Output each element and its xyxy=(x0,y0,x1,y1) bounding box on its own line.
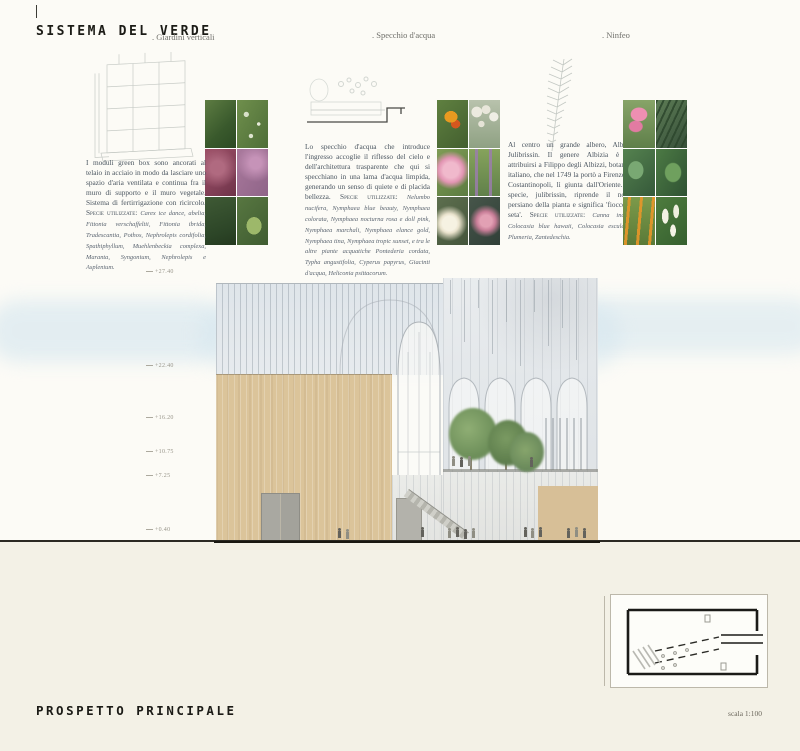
person-figure xyxy=(346,532,349,539)
level-marker: +16.20 xyxy=(146,415,210,421)
scale-note: scala 1:100 xyxy=(728,709,762,718)
photo-albizia-pink-flowers xyxy=(623,100,655,148)
photo-white-blossom-shrub xyxy=(237,100,268,148)
entrance-door xyxy=(261,493,300,543)
species-label: Specie utilizzate: xyxy=(530,210,586,219)
water-plants-photo-collage xyxy=(437,100,500,245)
person-figure xyxy=(567,531,570,538)
drawing-title: PROSPETTO PRINCIPALE xyxy=(36,703,237,718)
person-figure xyxy=(421,530,424,537)
mezzanine-tree xyxy=(510,432,544,472)
vertical-garden-photo-collage xyxy=(205,100,268,245)
photo-pink-lotus xyxy=(437,149,468,197)
hanging-cable xyxy=(478,280,479,308)
person-figure xyxy=(464,532,467,539)
species-list: Nelumbo nucifera, Nymphaea blue beauty, … xyxy=(305,194,430,277)
person-figure xyxy=(530,460,533,467)
presentation-board: SISTEMA DEL VERDE . Giardini verticali .… xyxy=(0,0,800,751)
photo-dark-green-leaves xyxy=(205,197,236,245)
person-figure xyxy=(468,459,471,466)
photo-pink-water-lily xyxy=(469,197,500,245)
photo-calla-lilies xyxy=(656,197,688,245)
photo-purple-fittonia xyxy=(237,149,268,197)
keyplan-drawing xyxy=(625,607,765,677)
species-label: Specie utilizzate: xyxy=(340,192,398,201)
sky-watercolor-wash xyxy=(0,300,228,362)
person-figure xyxy=(583,531,586,538)
building-base-shadow xyxy=(214,541,600,543)
species-label: Specie utilizzate: xyxy=(86,208,137,217)
level-marker: +0.40 xyxy=(146,527,210,533)
level-marker: +22.40 xyxy=(146,363,210,369)
photo-green-foliage xyxy=(205,100,236,148)
person-figure xyxy=(338,531,341,538)
tan-stone-wall xyxy=(216,374,392,542)
photo-heliconia-orange xyxy=(437,100,468,148)
species-list: Carex ice dance, abelia, Fittonia versch… xyxy=(86,210,206,271)
level-marker: +10.75 xyxy=(146,449,210,455)
water-basin-section-sketch xyxy=(303,66,411,138)
photo-canna-orange-flowers xyxy=(623,197,655,245)
vertical-garden-axonometric-sketch xyxy=(85,52,203,164)
photo-monstera-leaf xyxy=(656,149,688,197)
ninfeo-paragraph: Al centro un grande albero, Albizia Juli… xyxy=(508,140,634,243)
person-figure xyxy=(472,531,475,538)
person-figure xyxy=(448,531,451,538)
hanging-cable xyxy=(506,280,507,322)
hanging-cable xyxy=(534,280,535,312)
person-figure xyxy=(460,460,463,467)
photo-albizia-foliage xyxy=(656,100,688,148)
keyplan-frame xyxy=(610,594,768,688)
person-figure xyxy=(524,530,527,537)
section-label-giardini-verticali: . Giardini verticali xyxy=(152,32,215,42)
interior-column-cluster xyxy=(545,418,587,470)
person-figure xyxy=(531,531,534,538)
section-label-specchio-dacqua: . Specchio d'acqua xyxy=(372,30,435,40)
photo-calathea-leaves xyxy=(623,149,655,197)
ninfeo-photo-collage xyxy=(623,100,687,245)
photo-red-fittonia xyxy=(205,149,236,197)
body-text: I moduli green box sono ancorati al tela… xyxy=(86,158,206,207)
photo-white-water-lily xyxy=(437,197,468,245)
level-marker: +27.40 xyxy=(146,269,210,275)
body-text: Al centro un grande albero, Albizia Juli… xyxy=(508,140,634,219)
hanging-cable xyxy=(450,280,451,314)
photo-pontederia-spikes xyxy=(469,149,500,197)
person-figure xyxy=(452,459,455,466)
specchio-dacqua-paragraph: Lo specchio d'acqua che introduce l'ingr… xyxy=(305,142,430,279)
giardini-verticali-paragraph: I moduli green box sono ancorati al tela… xyxy=(86,158,206,273)
person-figure xyxy=(575,530,578,537)
person-figure xyxy=(539,530,542,537)
corner-tick-mark xyxy=(36,5,37,18)
section-label-ninfeo: . Ninfeo xyxy=(602,30,630,40)
keyplan-side-line xyxy=(604,596,605,686)
person-figure xyxy=(456,530,459,537)
hanging-cable xyxy=(562,280,563,328)
level-marker: +7.25 xyxy=(146,473,210,479)
photo-peperomia-plant xyxy=(237,197,268,245)
photo-white-pond-flowers xyxy=(469,100,500,148)
